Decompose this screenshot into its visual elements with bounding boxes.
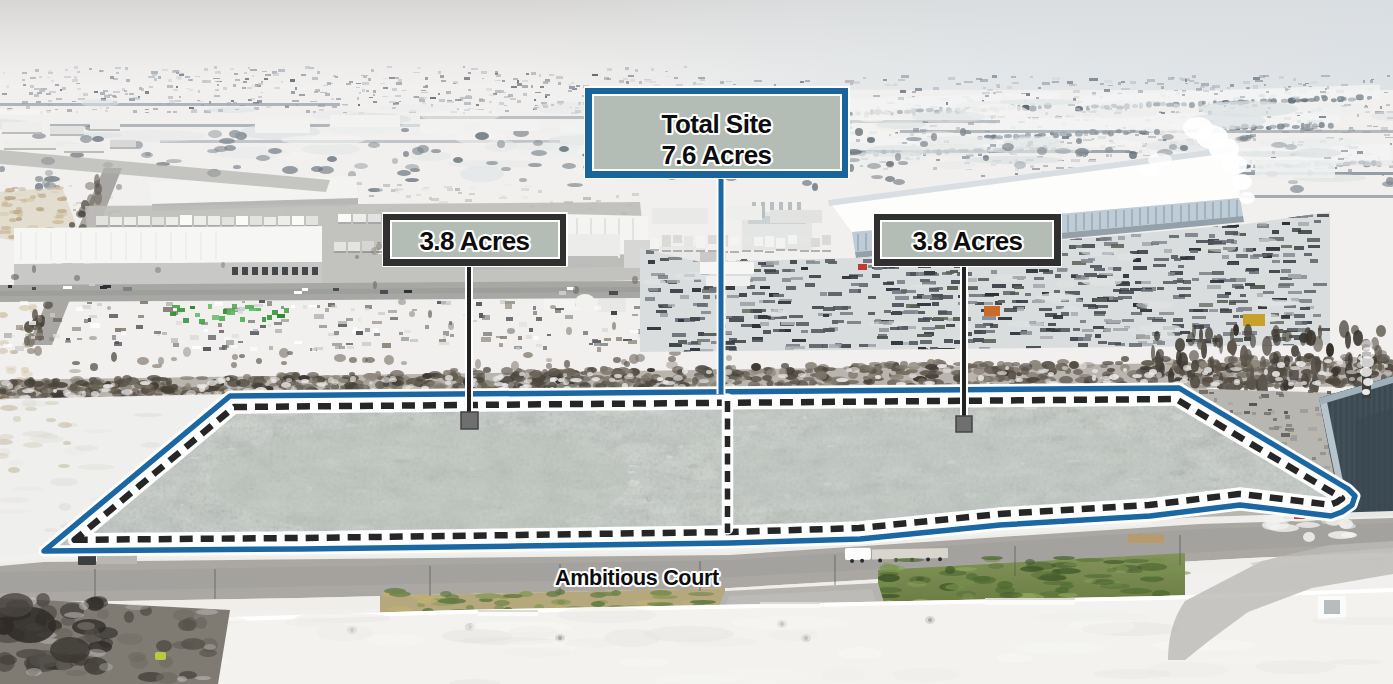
svg-text:7.6 Acres: 7.6 Acres [661, 140, 771, 170]
svg-text:3.8 Acres: 3.8 Acres [912, 226, 1022, 256]
svg-text:Ambitious Court: Ambitious Court [555, 566, 719, 590]
svg-text:3.8 Acres: 3.8 Acres [419, 226, 529, 256]
svg-text:Total Site: Total Site [661, 109, 771, 139]
